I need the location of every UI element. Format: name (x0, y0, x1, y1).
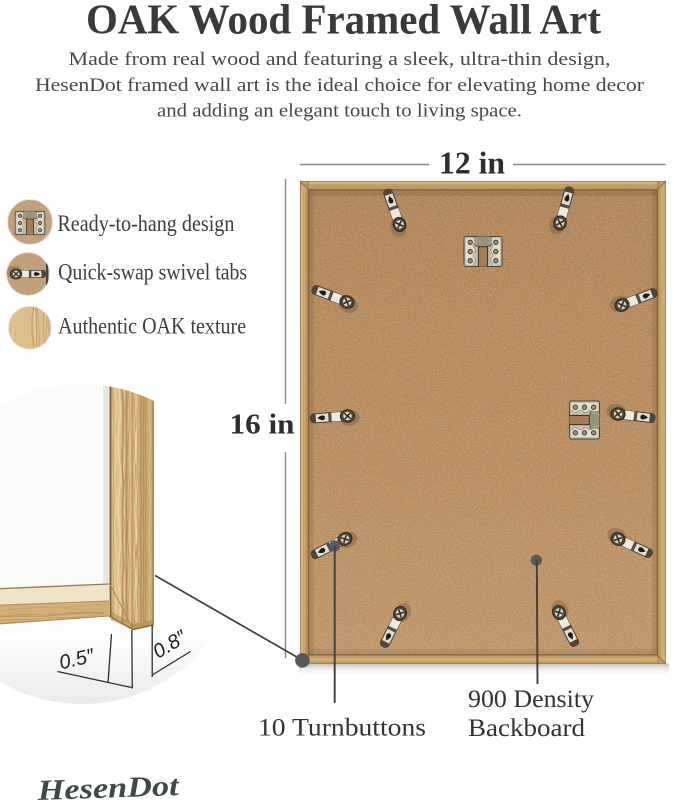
svg-text:Authentic OAK texture: Authentic OAK texture (58, 313, 246, 338)
svg-text:HesenDot: HesenDot (36, 770, 180, 805)
svg-text:OAK Wood Framed Wall Art: OAK Wood Framed Wall Art (86, 0, 601, 44)
svg-text:12 in: 12 in (439, 145, 505, 181)
svg-text:Backboard: Backboard (468, 713, 585, 742)
svg-text:10 Turnbuttons: 10 Turnbuttons (258, 713, 426, 742)
svg-text:900 Density: 900 Density (468, 684, 594, 713)
svg-text:16 in: 16 in (230, 409, 295, 441)
svg-text:Made from real wood and featur: Made from real wood and featuring a slee… (69, 49, 611, 70)
svg-text:HesenDot framed wall art is th: HesenDot framed wall art is the ideal ch… (35, 75, 645, 96)
svg-text:and adding an elegant touch to: and adding an elegant touch to living sp… (157, 100, 522, 121)
svg-text:Ready-to-hang design: Ready-to-hang design (57, 211, 234, 236)
svg-text:Quick-swap swivel tabs: Quick-swap swivel tabs (58, 260, 247, 285)
